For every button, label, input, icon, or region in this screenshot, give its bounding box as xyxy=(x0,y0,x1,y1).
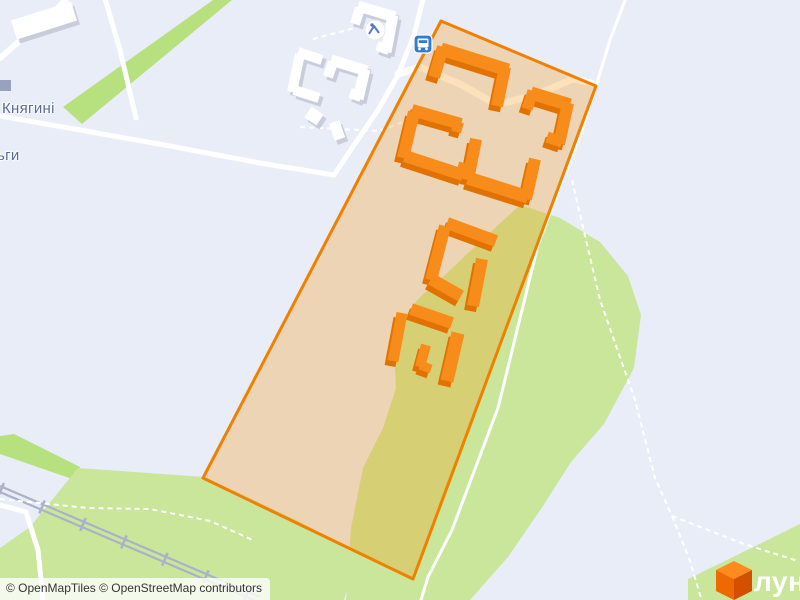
building xyxy=(355,8,360,24)
map-canvas[interactable]: Княгині ьги © OpenMapTiles © OpenStreetM… xyxy=(0,0,800,600)
building xyxy=(377,46,389,50)
new-building xyxy=(547,137,562,142)
building xyxy=(334,122,340,139)
lun-logo: лун xyxy=(690,555,800,600)
new-building xyxy=(497,67,505,106)
new-building xyxy=(420,365,431,369)
map-tiles xyxy=(0,0,800,600)
new-building xyxy=(527,91,533,109)
building xyxy=(328,62,333,77)
map-attribution[interactable]: © OpenMapTiles © OpenStreetMap contribut… xyxy=(0,578,270,600)
bus-stop-icon xyxy=(414,35,432,53)
building xyxy=(350,93,361,97)
lun-logo-text: лун xyxy=(754,568,800,596)
building xyxy=(308,112,320,120)
new-building xyxy=(456,122,459,132)
poi-building-icon xyxy=(0,80,11,91)
playground-icon xyxy=(365,20,385,40)
